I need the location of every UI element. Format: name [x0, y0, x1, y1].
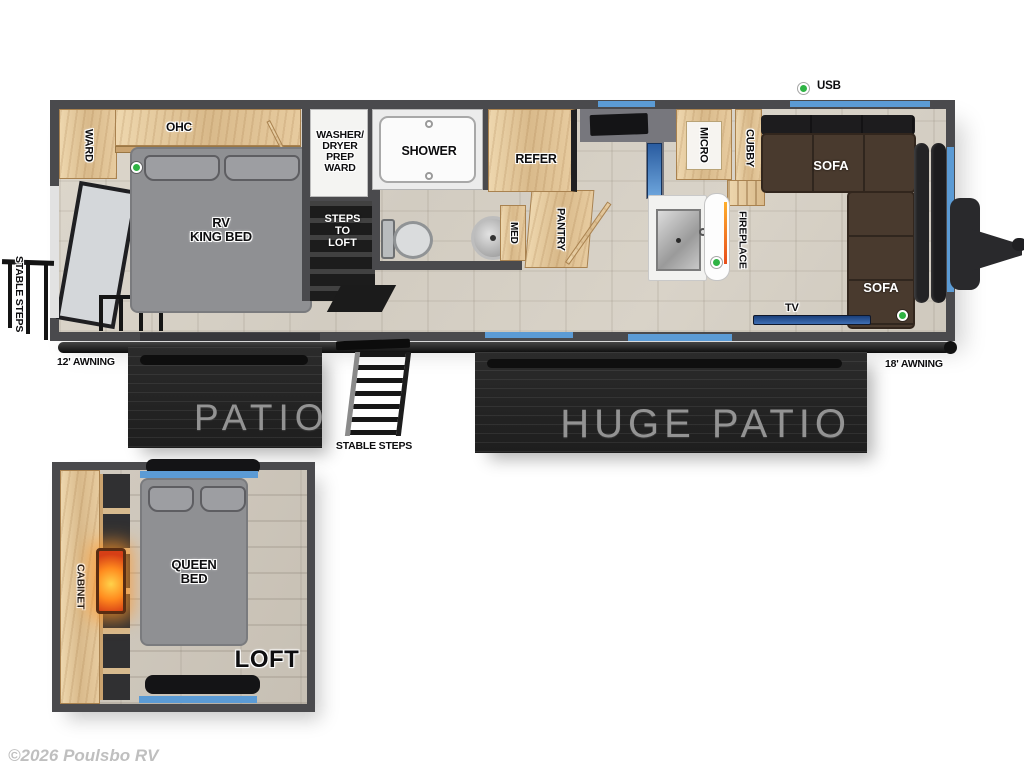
med-label: MED	[502, 209, 524, 257]
fireplace-flame-strip	[724, 202, 727, 264]
refer-label: REFER	[508, 149, 564, 169]
ward-label: WARD	[73, 115, 103, 175]
huge-patio-deck-rail	[487, 359, 842, 368]
awning-18-label: 18' AWNING	[885, 359, 943, 370]
steps-to-loft-label: STEPS TO LOFT	[310, 205, 375, 257]
side-step-post	[8, 262, 12, 328]
sofa-side-label: SOFA	[851, 279, 911, 297]
loft-bottom-bar	[145, 675, 260, 694]
wall-segment	[372, 190, 380, 269]
pantry-label: PANTRY	[547, 197, 573, 261]
watermark: ©2026 Poulsbo RV	[8, 746, 158, 766]
huge-patio-label: HUGE PATIO	[560, 402, 851, 447]
shower-drain	[425, 172, 433, 180]
rv-floorplan-scene: WARD OHC RV KING BED WASHER/ DRYER PREP …	[0, 0, 1024, 768]
toilet	[393, 221, 433, 259]
patio-deck: PATIO	[128, 347, 322, 448]
pillow	[148, 486, 194, 512]
pillow	[224, 155, 300, 181]
ohc-label: OHC	[139, 113, 219, 141]
kitchen-sink-drain	[676, 238, 681, 243]
window	[790, 101, 930, 107]
window	[628, 334, 732, 341]
tv	[753, 315, 871, 325]
sofa-side-section	[847, 191, 915, 329]
kitchen-island	[648, 195, 707, 281]
cubby-label: CUBBY	[737, 117, 761, 179]
sofa-front-label: SOFA	[801, 157, 861, 175]
stable-steps-ladder	[345, 352, 411, 436]
hitch-coupler	[1012, 238, 1024, 251]
awning-12-label: 12' AWNING	[57, 357, 115, 368]
cooktop	[590, 113, 649, 136]
window	[598, 101, 655, 107]
queen-bed-label: QUEEN BED	[164, 554, 224, 590]
usb-indicator-dot	[798, 83, 809, 94]
side-step-post	[26, 262, 30, 334]
patio-door-glass	[140, 333, 320, 341]
patio-deck-rail	[140, 355, 308, 365]
window	[485, 332, 573, 338]
lounge-cushion	[914, 143, 929, 303]
sofa-back-cushions	[761, 115, 915, 135]
range-oven	[647, 143, 662, 198]
loft-window	[139, 696, 257, 703]
cabinet-label: CABINET	[66, 552, 94, 622]
king-bed-label: RV KING BED	[171, 209, 271, 251]
patio-label: PATIO	[194, 397, 330, 439]
shower-label: SHOWER	[389, 141, 469, 161]
huge-patio-deck: HUGE PATIO	[475, 352, 867, 453]
main-floorplan: WARD OHC RV KING BED WASHER/ DRYER PREP …	[50, 100, 955, 341]
tv-label: TV	[785, 303, 799, 314]
wall-segment	[372, 261, 522, 270]
awning-roller-cap	[944, 341, 957, 354]
loft-fireplace	[96, 548, 126, 614]
pillow	[200, 486, 246, 512]
bath-sink-drain	[490, 235, 496, 241]
power-indicator-dot	[711, 257, 722, 268]
power-indicator-dot	[131, 162, 142, 173]
loft-window	[140, 471, 258, 478]
rv-king-bed: RV KING BED	[130, 147, 312, 313]
usb-label: USB	[817, 81, 841, 93]
loft-label: LOFT	[232, 646, 302, 674]
pillow	[144, 155, 220, 181]
washer-dryer-label: WASHER/ DRYER PREP WARD	[308, 121, 372, 183]
stable-steps-side-label: STABLE STEPS	[13, 256, 24, 356]
side-step-post	[44, 264, 48, 340]
stable-steps-label: STABLE STEPS	[328, 440, 420, 453]
power-indicator-dot	[897, 310, 908, 321]
lounge-cushion	[931, 143, 946, 303]
micro-label: MICRO	[688, 117, 718, 173]
fireplace-label: FIREPLACE	[731, 195, 753, 285]
shower-drain	[425, 120, 433, 128]
queen-bed: QUEEN BED	[140, 478, 248, 646]
entry-door-opening	[50, 186, 59, 318]
